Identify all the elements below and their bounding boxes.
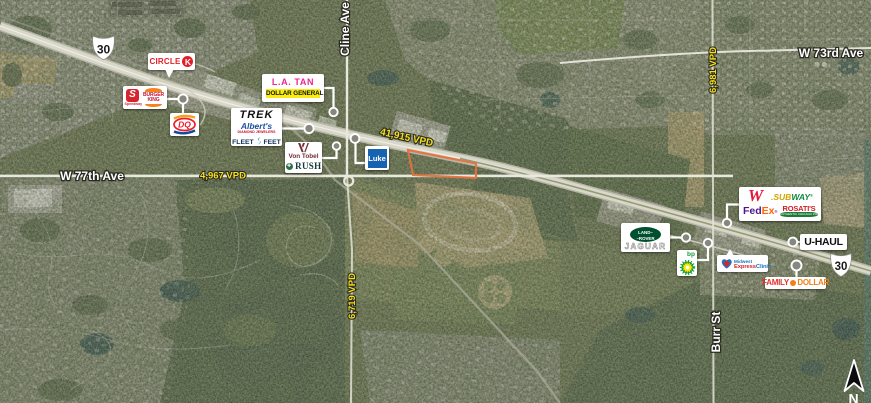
svg-text:30: 30 [97, 42, 111, 56]
svg-text:W 73rd Ave: W 73rd Ave [799, 46, 864, 60]
svg-text:30: 30 [835, 261, 848, 273]
svg-text:6,981 VPD: 6,981 VPD [708, 47, 719, 93]
svg-text:4,967 VPD: 4,967 VPD [200, 171, 246, 182]
svg-text:Cline Ave: Cline Ave [338, 2, 352, 56]
svg-text:N: N [848, 391, 858, 403]
svg-text:6,719 VPD: 6,719 VPD [347, 273, 358, 319]
svg-text:W 77th Ave: W 77th Ave [60, 169, 124, 183]
svg-text:Burr St: Burr St [709, 312, 723, 353]
svg-text:DQ: DQ [178, 120, 191, 130]
